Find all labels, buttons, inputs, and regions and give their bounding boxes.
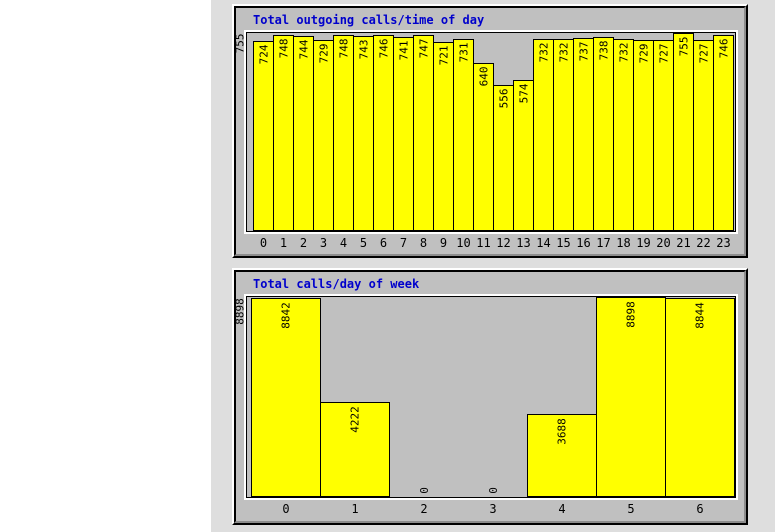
bar bbox=[353, 36, 374, 231]
bar-value-label: 729 bbox=[317, 44, 330, 64]
chart-title-hourly: Total outgoing calls/time of day bbox=[253, 13, 484, 27]
bar-zero-value-label: 0 bbox=[417, 487, 430, 494]
x-axis-tick-label: 3 bbox=[476, 502, 510, 516]
bar-value-label: 8844 bbox=[693, 302, 706, 328]
bar bbox=[313, 40, 334, 231]
bar bbox=[393, 37, 414, 231]
bar-value-label: 738 bbox=[597, 41, 610, 61]
bar bbox=[633, 40, 654, 231]
bar-value-label: 8898 bbox=[624, 301, 637, 327]
bar bbox=[453, 39, 474, 231]
bar bbox=[673, 33, 694, 231]
hourly-x-axis-labels: 01234567891011121314151617181920212223 bbox=[247, 236, 741, 250]
bar-value-label: 556 bbox=[497, 89, 510, 109]
bar-value-label: 8842 bbox=[279, 302, 292, 328]
bar bbox=[433, 42, 454, 231]
bar-value-label: 755 bbox=[677, 37, 690, 57]
bar-value-label: 746 bbox=[377, 39, 390, 59]
chart-panel-weekly-inner: Total calls/day of week 8898 88424222003… bbox=[234, 270, 746, 523]
bar bbox=[653, 40, 674, 231]
x-axis-tick-label: 1 bbox=[338, 502, 372, 516]
bar-value-label: 640 bbox=[477, 67, 490, 87]
bar-value-label: 727 bbox=[657, 44, 670, 64]
bar-value-label: 732 bbox=[617, 43, 630, 63]
x-axis-tick-label: 4 bbox=[545, 502, 579, 516]
bar-value-label: 748 bbox=[277, 39, 290, 59]
bar-value-label: 3688 bbox=[555, 418, 568, 444]
bar-value-label: 721 bbox=[437, 46, 450, 66]
bar-value-label: 727 bbox=[697, 44, 710, 64]
bar bbox=[593, 37, 614, 231]
bar bbox=[573, 38, 594, 231]
bar-value-label: 744 bbox=[297, 40, 310, 60]
chart-panel-weekly-calls: Total calls/day of week 8898 88424222003… bbox=[232, 268, 748, 525]
bar bbox=[413, 35, 434, 231]
bar-value-label: 737 bbox=[577, 42, 590, 62]
bar bbox=[473, 63, 494, 231]
report-page: Total outgoing calls/time of day 755 724… bbox=[0, 0, 775, 532]
x-axis-tick-label: 23 bbox=[707, 236, 741, 250]
hourly-plot-frame: 755 724748744729748743746741747721731640… bbox=[246, 32, 736, 232]
bar-value-label: 724 bbox=[257, 45, 270, 65]
hourly-plot-area: 755 724748744729748743746741747721731640… bbox=[247, 33, 735, 231]
weekly-plot-area: 8898 8842422200368888988844 bbox=[247, 297, 735, 497]
x-axis-tick-label: 6 bbox=[683, 502, 717, 516]
bar-value-label: 731 bbox=[457, 43, 470, 63]
bar-value-label: 747 bbox=[417, 39, 430, 59]
bar bbox=[713, 35, 734, 231]
bar bbox=[533, 39, 554, 231]
bar-value-label: 732 bbox=[557, 43, 570, 63]
bar bbox=[273, 35, 294, 231]
bar-value-label: 732 bbox=[537, 43, 550, 63]
bar-value-label: 4222 bbox=[348, 406, 361, 432]
x-axis-tick-label: 0 bbox=[269, 502, 303, 516]
bar-value-label: 741 bbox=[397, 41, 410, 61]
bar-zero-value-label: 0 bbox=[486, 487, 499, 494]
weekly-plot-frame: 8898 8842422200368888988844 bbox=[246, 296, 736, 498]
bar bbox=[613, 39, 634, 231]
bar-value-label: 743 bbox=[357, 40, 370, 60]
bar bbox=[333, 35, 354, 231]
bar bbox=[693, 40, 714, 231]
bar-value-label: 729 bbox=[637, 44, 650, 64]
bar bbox=[253, 41, 274, 231]
hourly-y-max-label: 755 bbox=[234, 34, 247, 54]
x-axis-tick-label: 5 bbox=[614, 502, 648, 516]
bar-value-label: 574 bbox=[517, 84, 530, 104]
weekly-y-max-label: 8898 bbox=[234, 298, 247, 324]
bar-value-label: 746 bbox=[717, 39, 730, 59]
bar bbox=[293, 36, 314, 231]
chart-panel-hourly-calls: Total outgoing calls/time of day 755 724… bbox=[232, 4, 748, 258]
charts-area: Total outgoing calls/time of day 755 724… bbox=[211, 0, 775, 532]
bar-value-label: 748 bbox=[337, 39, 350, 59]
weekly-x-axis-labels: 0123456 bbox=[247, 502, 741, 516]
x-axis-tick-label: 2 bbox=[407, 502, 441, 516]
chart-title-weekly: Total calls/day of week bbox=[253, 277, 419, 291]
bar bbox=[553, 39, 574, 231]
chart-panel-hourly-inner: Total outgoing calls/time of day 755 724… bbox=[234, 6, 746, 256]
bar bbox=[373, 35, 394, 231]
